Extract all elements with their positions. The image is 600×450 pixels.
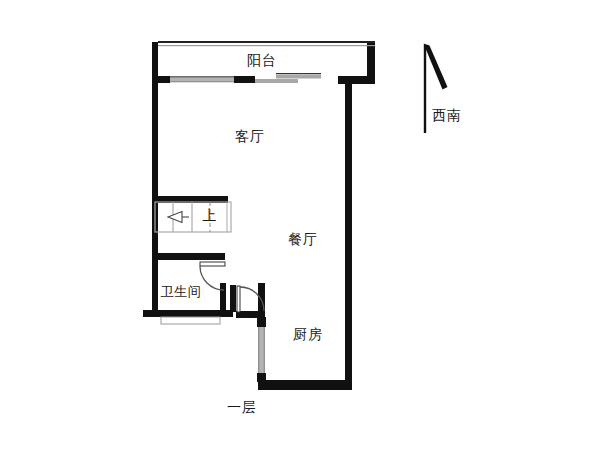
kitchen-bottom-wall xyxy=(258,380,352,390)
room-label-bathroom: 卫生间 xyxy=(161,285,202,298)
bathroom-top-wall xyxy=(152,253,225,260)
bathroom-bottom-wall xyxy=(143,310,233,317)
room-label-kitchen: 厨房 xyxy=(293,328,323,342)
floor-plan-canvas: 阳台 客厅 餐厅 卫生间 厨房 上 西南 一层 xyxy=(0,0,600,450)
room-label-dining-room: 餐厅 xyxy=(288,233,318,247)
balcony-railing xyxy=(158,41,375,46)
floor-title-label: 一层 xyxy=(227,401,257,415)
balcony-divider-wall-mid xyxy=(234,76,255,83)
hall-door-stub-wall xyxy=(230,285,236,312)
stairs-direction-label: 上 xyxy=(203,209,218,223)
kitchen-window xyxy=(259,327,265,373)
left-wall xyxy=(152,42,158,317)
room-label-living-room: 客厅 xyxy=(235,130,265,144)
staircase xyxy=(155,202,231,232)
bathroom-right-wall xyxy=(220,283,226,312)
balcony-divider-wall-right xyxy=(338,76,375,84)
living-room-window xyxy=(170,77,234,82)
kitchen-window-cap-bottom xyxy=(257,373,266,382)
right-wall xyxy=(345,80,352,390)
stairs-up-arrow-icon xyxy=(168,212,189,223)
balcony-sliding-door xyxy=(255,73,321,83)
compass-direction-label: 西南 xyxy=(432,109,462,123)
balcony-divider-wall-left xyxy=(152,76,170,83)
room-label-balcony: 阳台 xyxy=(247,54,277,68)
bathroom-window xyxy=(161,317,220,324)
kitchen-window-cap-top xyxy=(257,317,266,327)
floor-plan-drawing xyxy=(0,0,600,450)
